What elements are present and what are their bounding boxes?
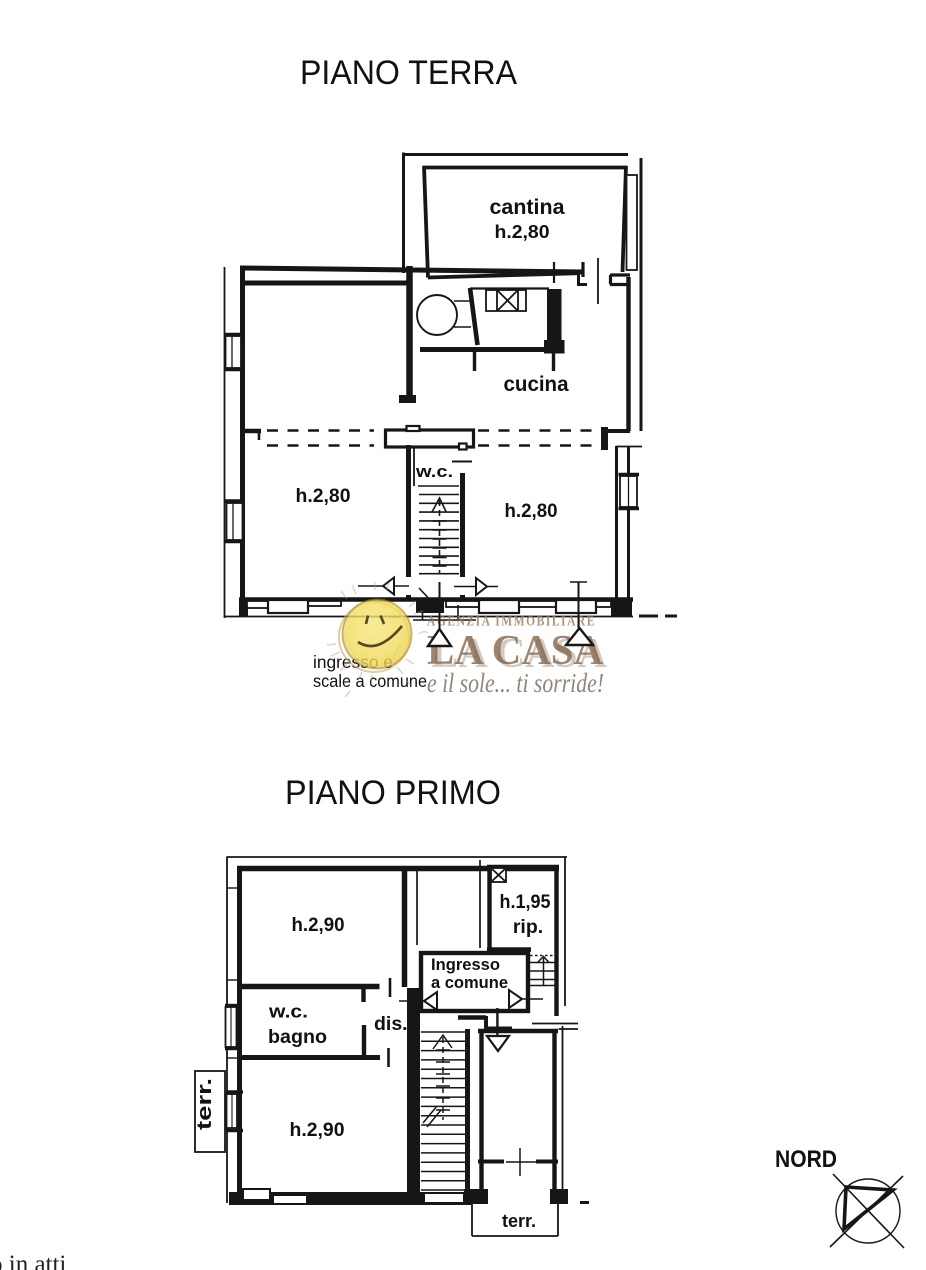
svg-text:cucina: cucina <box>504 373 569 396</box>
svg-text:terr.: terr. <box>194 1078 216 1130</box>
svg-text:dis.: dis. <box>374 1013 408 1035</box>
svg-text:scale a comune: scale a comune <box>313 671 427 691</box>
svg-text:o in atti: o in atti <box>0 1251 66 1270</box>
svg-text:w.c.: w.c. <box>268 1002 308 1022</box>
svg-text:PIANO PRIMO: PIANO PRIMO <box>285 774 501 812</box>
svg-text:bagno: bagno <box>268 1026 327 1048</box>
svg-text:h.2,90: h.2,90 <box>292 914 345 936</box>
svg-text:h.2,80: h.2,80 <box>505 500 558 522</box>
svg-text:PIANO TERRA: PIANO TERRA <box>300 54 517 92</box>
svg-text:h.1,95: h.1,95 <box>500 892 551 913</box>
svg-text:h.2,90: h.2,90 <box>290 1119 345 1141</box>
svg-text:rip.: rip. <box>513 916 543 938</box>
svg-text:Ingresso: Ingresso <box>431 955 500 974</box>
svg-text:cantina: cantina <box>490 196 565 219</box>
svg-text:h.2,80: h.2,80 <box>296 485 351 507</box>
svg-text:terr.: terr. <box>502 1211 536 1231</box>
svg-text:w.c.: w.c. <box>415 462 453 481</box>
svg-text:NORD: NORD <box>775 1146 837 1173</box>
svg-text:a comune: a comune <box>431 973 508 992</box>
svg-text:h.2,80: h.2,80 <box>495 222 550 242</box>
svg-text:e il sole... ti sorride!: e il sole... ti sorride! <box>427 668 604 698</box>
